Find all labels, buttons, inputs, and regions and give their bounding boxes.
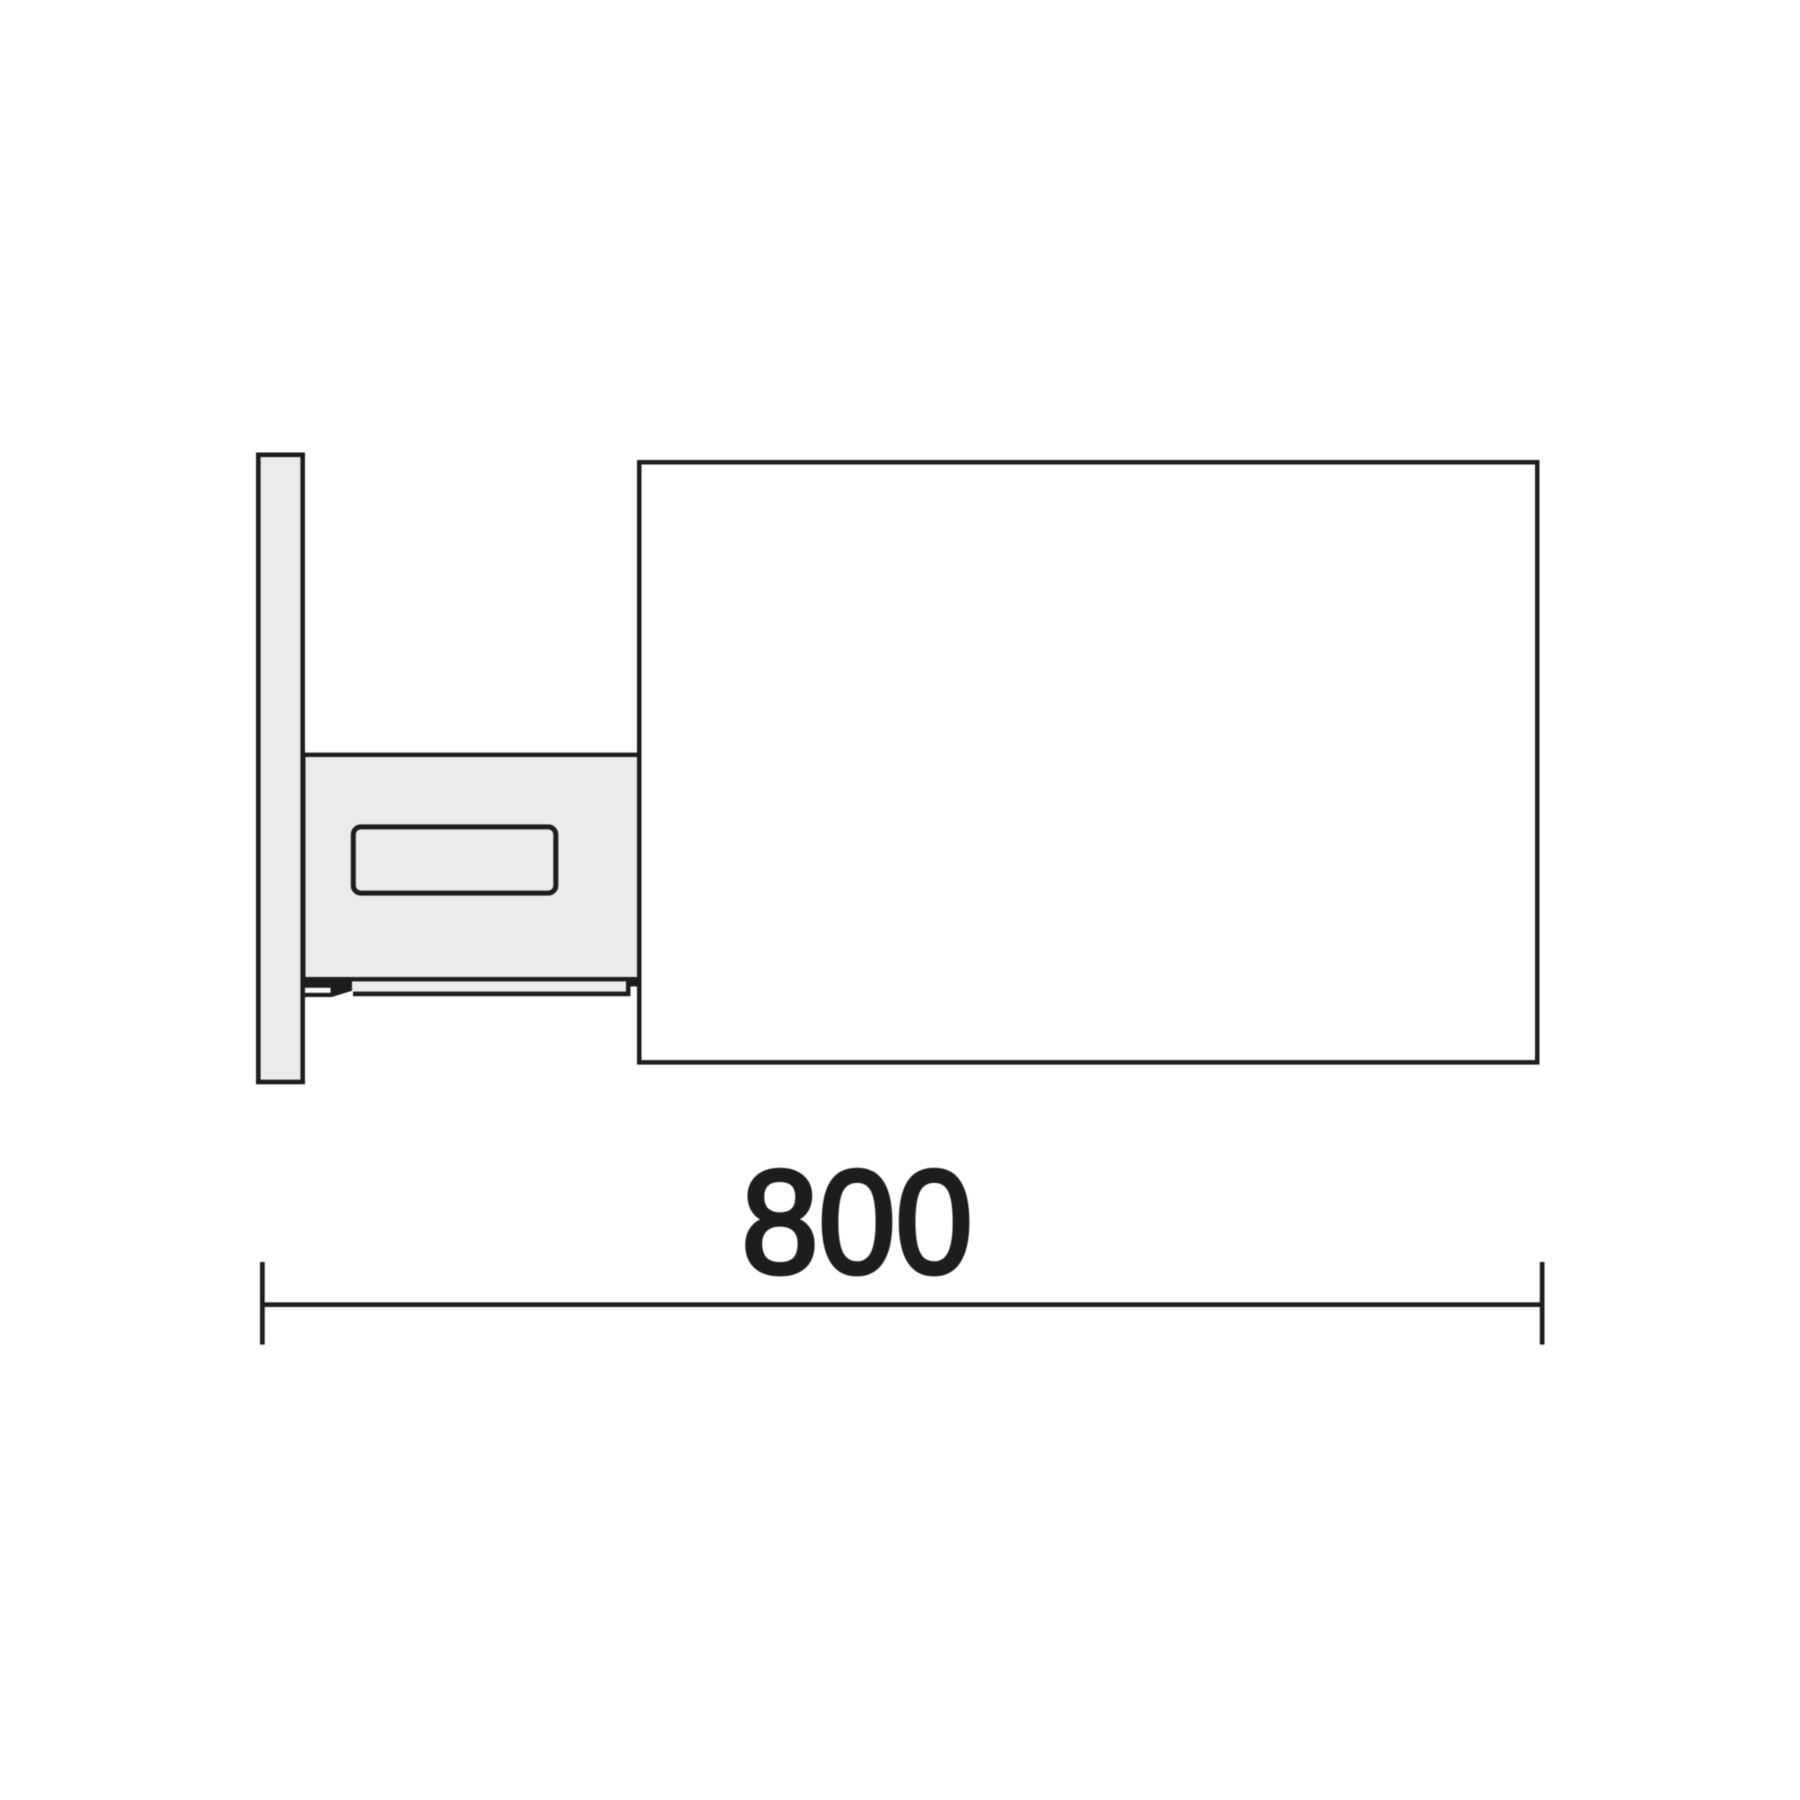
svg-text:800: 800	[741, 1141, 972, 1305]
